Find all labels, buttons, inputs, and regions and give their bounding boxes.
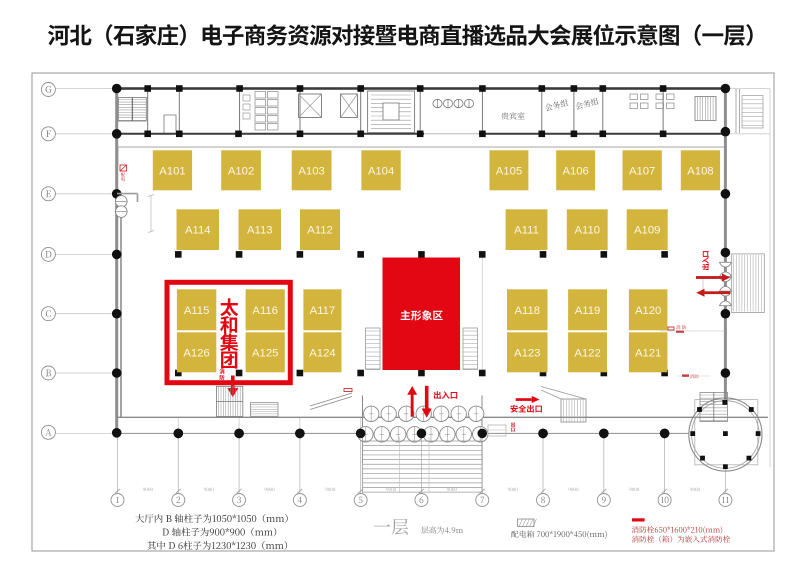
svg-text:A123: A123 xyxy=(514,347,540,359)
svg-text:A115: A115 xyxy=(184,305,210,317)
svg-text:A112: A112 xyxy=(307,225,333,237)
svg-text:A121: A121 xyxy=(635,347,661,359)
svg-text:A103: A103 xyxy=(298,165,324,177)
svg-text:A126: A126 xyxy=(183,347,209,359)
svg-text:A104: A104 xyxy=(368,165,394,177)
svg-text:A102: A102 xyxy=(228,165,254,177)
svg-text:A105: A105 xyxy=(496,165,522,177)
svg-text:A124: A124 xyxy=(309,347,335,359)
svg-text:A117: A117 xyxy=(310,305,336,317)
svg-text:A116: A116 xyxy=(252,305,278,317)
svg-text:A101: A101 xyxy=(159,165,185,177)
svg-text:A111: A111 xyxy=(514,225,539,237)
svg-text:A120: A120 xyxy=(635,305,661,317)
svg-text:A108: A108 xyxy=(687,165,713,177)
svg-text:A118: A118 xyxy=(514,305,540,317)
svg-text:A125: A125 xyxy=(252,347,278,359)
svg-text:A109: A109 xyxy=(634,225,660,237)
svg-text:A122: A122 xyxy=(574,347,600,359)
svg-text:A114: A114 xyxy=(185,225,211,237)
svg-text:A106: A106 xyxy=(562,165,588,177)
svg-text:A119: A119 xyxy=(575,305,601,317)
svg-text:A107: A107 xyxy=(629,165,655,177)
svg-text:A110: A110 xyxy=(574,225,600,237)
svg-text:A113: A113 xyxy=(247,225,273,237)
